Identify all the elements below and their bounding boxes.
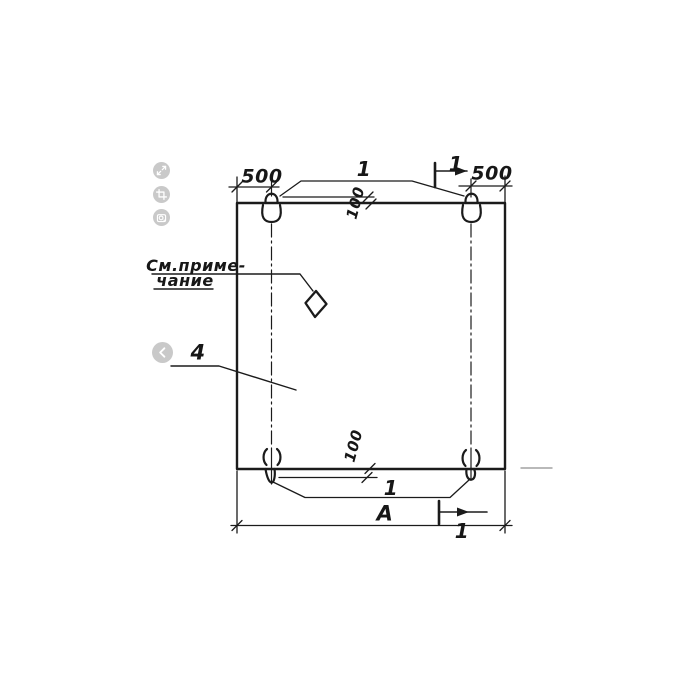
drawing-viewer: 500 500 1 1 100 См.приме- чание 4 100 1 … <box>0 0 700 700</box>
section-bottom-label: 1 <box>455 521 469 541</box>
lens-button[interactable] <box>153 209 170 226</box>
ref-panel-label: 4 <box>190 343 205 364</box>
panel-outline <box>237 203 505 469</box>
leader-panel-ref <box>171 366 296 390</box>
lifting-loop-top-left <box>262 194 281 222</box>
panel-drawing <box>0 0 700 700</box>
dimension-100-bottom-lines <box>279 464 377 483</box>
crop-button[interactable] <box>153 186 170 203</box>
dim-width-label: А <box>377 504 394 525</box>
dim-500-left-label: 500 <box>241 168 282 187</box>
leader-loops-bottom <box>273 480 469 498</box>
diamond-mark <box>306 291 327 317</box>
crop-icon <box>155 188 168 201</box>
chevron-left-icon <box>155 345 170 360</box>
previous-button[interactable] <box>152 342 173 363</box>
lifting-loop-top-right <box>462 194 481 222</box>
lens-icon <box>155 211 168 224</box>
expand-button[interactable] <box>153 162 170 179</box>
expand-icon <box>155 164 168 177</box>
dim-500-right-label: 500 <box>471 165 512 184</box>
ref-loops-bottom-label: 1 <box>384 478 398 498</box>
note-label-line2: чание <box>156 273 213 289</box>
section-top-label: 1 <box>449 154 463 174</box>
ref-loops-top-label: 1 <box>357 159 371 179</box>
